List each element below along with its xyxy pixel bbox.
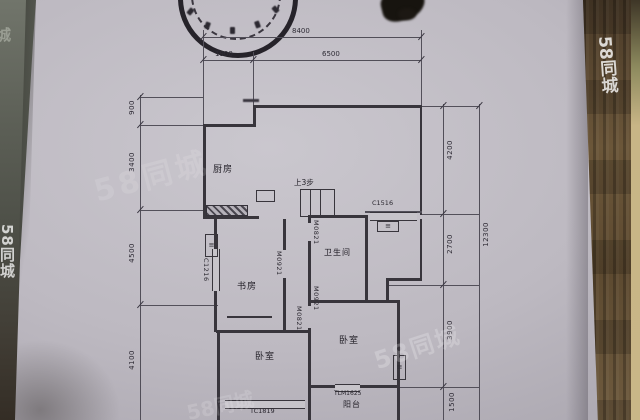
room-label-bedroom-left: 卧室 xyxy=(255,349,275,362)
wall-segment xyxy=(308,241,311,302)
wall-segment xyxy=(203,124,256,127)
room-label-bedroom-right: 卧室 xyxy=(339,333,359,346)
tag-tlm1625: TLM1625 xyxy=(334,390,361,397)
dim-top-total: 8400 xyxy=(292,27,310,35)
room-label-balcony: 阳台 xyxy=(343,399,361,410)
tag-m0821-bedroom: M0821 xyxy=(295,306,303,331)
room-label-kitchen: 厨房 xyxy=(213,162,233,175)
fixture-tag: ≡ xyxy=(377,221,399,232)
wall-segment xyxy=(283,219,286,250)
dim-right-2: 2700 xyxy=(446,234,454,254)
window-c1516 xyxy=(370,212,417,221)
tag-m0921-study: M0921 xyxy=(275,251,283,276)
dim-top-seg-2: 6500 xyxy=(322,50,340,58)
stairs-note: 上3步 xyxy=(294,177,314,188)
wall-segment xyxy=(365,215,368,303)
dim-left-1: 900 xyxy=(128,100,136,115)
dim-right-1: 4200 xyxy=(446,140,454,160)
wall-segment xyxy=(311,385,337,388)
tag-m0921-hall: M0921 xyxy=(312,286,320,311)
wall-segment xyxy=(420,105,423,215)
tag-c1216: C1216 xyxy=(202,258,210,282)
dim-extension-line xyxy=(389,285,480,286)
dim-extension-line xyxy=(141,305,218,306)
stair-landing xyxy=(256,190,275,202)
floorplan-photo: 8400 1900 6500 900 3400 4500 4100 4200 2… xyxy=(0,0,640,420)
stairs xyxy=(300,189,335,217)
dim-top-seg-1: 1900 xyxy=(215,50,233,58)
kitchen-counter xyxy=(206,205,248,216)
wall-segment xyxy=(214,291,217,332)
wall-segment xyxy=(358,385,400,388)
tag-c1516: C1516 xyxy=(372,199,393,207)
wall-segment xyxy=(253,105,256,126)
tag-m0821-bath: M0821 xyxy=(312,220,320,245)
dim-extension-line xyxy=(422,214,480,215)
dim-left-4: 4100 xyxy=(128,350,136,370)
dimension-line xyxy=(140,95,141,420)
wall-segment xyxy=(203,216,259,219)
dim-extension-line xyxy=(422,106,480,107)
stair-tread xyxy=(310,189,311,215)
level-mark xyxy=(243,99,259,102)
dim-right-4: 1500 xyxy=(448,392,456,412)
wall-segment xyxy=(308,328,311,420)
dim-extension-line xyxy=(421,30,422,105)
wall-segment xyxy=(420,219,423,280)
dimension-line xyxy=(443,104,444,420)
watermark-58tongcheng: 58同城 xyxy=(0,224,18,279)
wall-segment xyxy=(253,105,422,108)
room-label-study: 书房 xyxy=(237,279,257,292)
dimension-line xyxy=(479,104,480,420)
dimension-line xyxy=(203,60,422,61)
dim-right-total: 12300 xyxy=(482,222,490,247)
fixture-tag: ≡ xyxy=(205,234,218,257)
dimension-line xyxy=(203,37,422,38)
wall-segment xyxy=(283,278,286,332)
wall-segment xyxy=(365,300,400,303)
room-label-bathroom: 卫生间 xyxy=(324,247,351,258)
floorplan-drawing: 8400 1900 6500 900 3400 4500 4100 4200 2… xyxy=(0,0,640,420)
dim-left-3: 4500 xyxy=(128,243,136,263)
dim-extension-line xyxy=(141,125,203,126)
wall-segment xyxy=(386,278,422,281)
dim-extension-line xyxy=(203,30,204,125)
wall-segment xyxy=(227,316,272,318)
watermark-58tongcheng: 58同城 xyxy=(592,35,621,94)
watermark-partial: 城 xyxy=(0,24,11,45)
dim-extension-line xyxy=(141,97,203,98)
stair-tread xyxy=(320,189,321,215)
